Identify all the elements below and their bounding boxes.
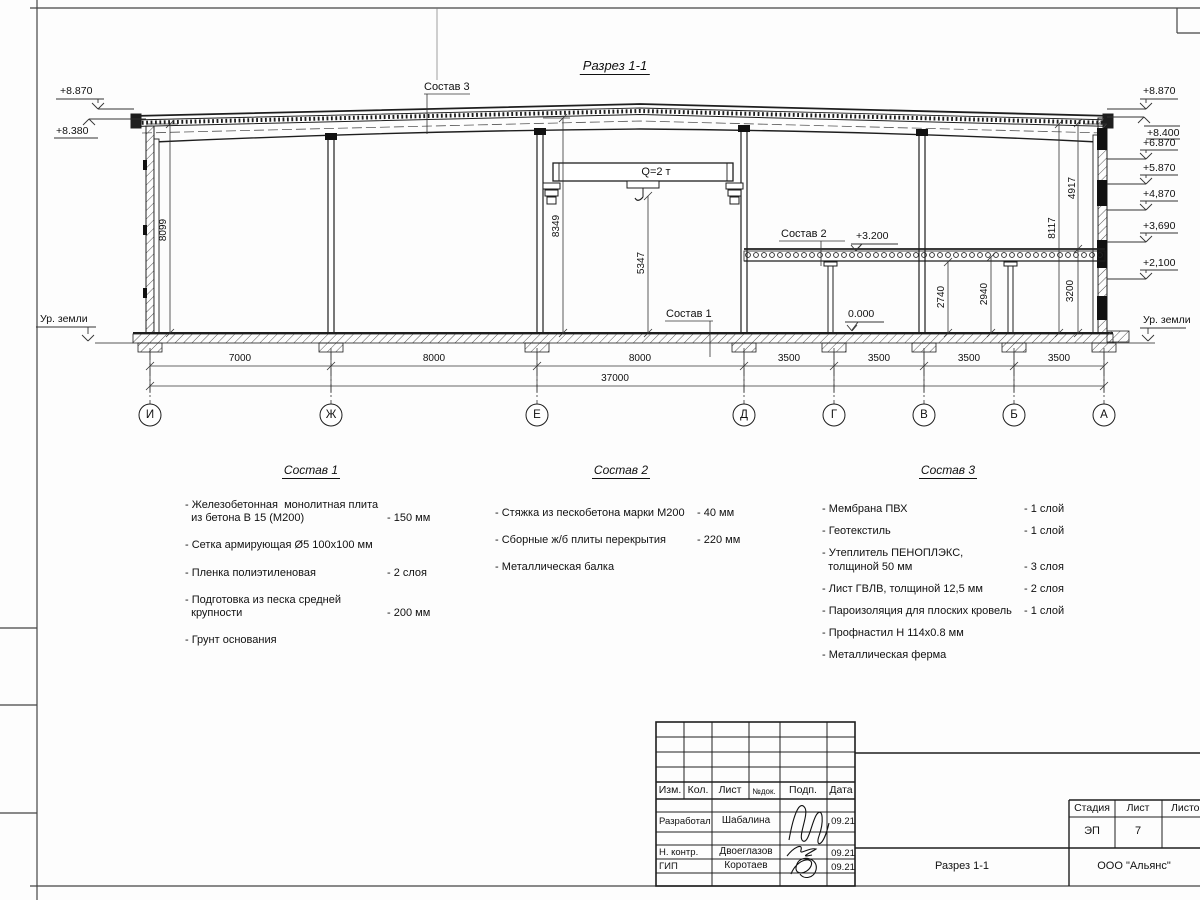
axis-bubble-a: А <box>1093 409 1115 421</box>
list-item: - Пароизоляция для плоских кровель- 1 сл… <box>822 605 1074 618</box>
elevation-left-8380: +8.380 <box>56 126 88 138</box>
dim-span-7000: 7000 <box>229 353 251 364</box>
list-item: - Металлическая ферма <box>822 649 1074 662</box>
list-item: - Пленка полиэтиленовая- 2 слоя <box>185 567 437 580</box>
callout-sostav2: Состав 2 <box>781 228 827 240</box>
titleblock-col-list: Лист <box>719 784 742 796</box>
dim-3200: 3200 <box>1065 261 1077 321</box>
titleblock-col-podp: Подп. <box>789 784 817 796</box>
titleblock-col-izm: Изм. <box>659 784 682 796</box>
list-item: - Металлическая балка <box>495 561 747 574</box>
titleblock-stage-label: Стадия <box>1074 802 1110 814</box>
dim-total-37000: 37000 <box>601 373 629 384</box>
axis-bubble-e: Е <box>526 409 548 421</box>
callout-sostav3: Состав 3 <box>424 81 470 93</box>
elevation-right-5870: +5.870 <box>1143 163 1175 175</box>
list-item: - Сборные ж/б плиты перекрытия- 220 мм <box>495 534 747 547</box>
titleblock-drawing-name: Разрез 1-1 <box>935 860 989 872</box>
ground-level-right: Ур. земли <box>1143 315 1191 327</box>
titleblock-company: ООО "Альянс" <box>1097 860 1171 872</box>
titleblock-sheet-label: Лист <box>1127 802 1150 814</box>
elevation-right-4870: +4,870 <box>1143 189 1175 201</box>
list-item: - Подготовка из песка средней крупности-… <box>185 594 437 620</box>
spec-list-sostav1: Состав 1 - Железобетонная монолитная пли… <box>185 463 437 661</box>
list-item: - Мембрана ПВХ- 1 слой <box>822 503 1074 516</box>
floor-slab <box>95 331 1155 352</box>
titleblock-date-ncontrol: 09.21 <box>831 848 855 859</box>
titleblock-sheets-label: Листов <box>1171 802 1200 814</box>
crane-capacity-label: Q=2 т <box>641 166 670 178</box>
titleblock-col-data: Дата <box>829 784 852 796</box>
elevation-left-8870: +8.870 <box>60 86 92 98</box>
page-title: Разрез 1-1 <box>580 58 650 75</box>
list-item: - Стяжка из пескобетона марки М200- 40 м… <box>495 507 747 520</box>
dim-span-8000b: 8000 <box>629 353 651 364</box>
titleblock-name-developer: Шабалина <box>722 815 770 826</box>
spec-title: Состав 2 <box>495 463 747 477</box>
elevation-right-2100: +2,100 <box>1143 258 1175 270</box>
spec-title: Состав 1 <box>185 463 437 477</box>
dim-5347: 5347 <box>636 233 648 293</box>
drawing-sheet: Разрез 1-1 +8.870 +8.380 Ур. земли +8.87… <box>0 0 1200 900</box>
level-mark-0000: 0.000 <box>848 309 874 321</box>
elevation-right-8870: +8.870 <box>1143 86 1175 98</box>
list-item: - Утеплитель ПЕНОПЛЭКС, толщиной 50 мм- … <box>822 547 1074 573</box>
signatures <box>787 806 829 878</box>
roof-truss <box>131 104 1113 142</box>
dim-span-3500c: 3500 <box>958 353 980 364</box>
list-item: - Лист ГВЛВ, толщиной 12,5 мм- 2 слоя <box>822 583 1074 596</box>
axis-bubbles <box>139 404 1115 426</box>
titleblock-date-gip: 09.21 <box>831 862 855 873</box>
dim-8099: 8099 <box>158 200 170 260</box>
dim-2740: 2740 <box>936 267 948 327</box>
spec-list-sostav2: Состав 2 - Стяжка из пескобетона марки М… <box>495 463 747 589</box>
axis-bubble-g: Г <box>823 409 845 421</box>
axis-bubble-zh: Ж <box>320 409 342 421</box>
titleblock-sheet-value: 7 <box>1135 825 1141 837</box>
titleblock-role-developer: Разработал <box>659 816 711 827</box>
list-item: - Грунт основания <box>185 634 437 647</box>
list-item: - Сетка армирующая Ø5 100х100 мм <box>185 539 437 552</box>
titleblock-stage-value: ЭП <box>1084 825 1100 837</box>
spec-title: Состав 3 <box>822 463 1074 477</box>
titleblock-name-gip: Коротаев <box>724 860 767 871</box>
sheet-frame <box>0 0 1200 900</box>
spec-list-sostav3: Состав 3 - Мембрана ПВХ- 1 слой - Геотек… <box>822 463 1074 672</box>
callout-sostav1: Состав 1 <box>666 308 712 320</box>
titleblock-role-gip: ГИП <box>659 861 678 872</box>
titleblock-role-ncontrol: Н. контр. <box>659 847 698 858</box>
vertical-dimensions <box>146 114 1107 337</box>
dim-4917: 4917 <box>1067 158 1079 218</box>
axis-bubble-i: И <box>139 409 161 421</box>
axis-bubble-d: Д <box>733 409 755 421</box>
ground-level-left: Ур. земли <box>40 314 88 326</box>
dim-span-3500a: 3500 <box>778 353 800 364</box>
level-mark-3200: +3.200 <box>856 231 888 243</box>
columns <box>325 125 1017 333</box>
axis-bubble-b: Б <box>1003 409 1025 421</box>
elevation-right-3690: +3,690 <box>1143 221 1175 233</box>
dim-span-8000a: 8000 <box>423 353 445 364</box>
elevation-right-6870: +6.870 <box>1143 138 1175 150</box>
titleblock-name-ncontrol: Двоеглазов <box>719 846 772 857</box>
dim-8117: 8117 <box>1047 198 1059 258</box>
section-drawing <box>0 0 1200 900</box>
list-item: - Железобетонная монолитная плита из бет… <box>185 499 437 525</box>
walls <box>143 118 1107 333</box>
dim-2940: 2940 <box>979 264 991 324</box>
list-item: - Профнастил Н 114х0.8 мм <box>822 627 1074 640</box>
callout-leaders <box>424 94 845 357</box>
titleblock-col-ndok: №док. <box>752 787 775 796</box>
dim-8349: 8349 <box>551 196 563 256</box>
titleblock-date-developer: 09.21 <box>831 816 855 827</box>
dim-span-3500b: 3500 <box>868 353 890 364</box>
list-item: - Геотекстиль- 1 слой <box>822 525 1074 538</box>
titleblock-col-kol: Кол. <box>688 784 709 796</box>
axis-bubble-v: В <box>913 409 935 421</box>
dim-span-3500d: 3500 <box>1048 353 1070 364</box>
